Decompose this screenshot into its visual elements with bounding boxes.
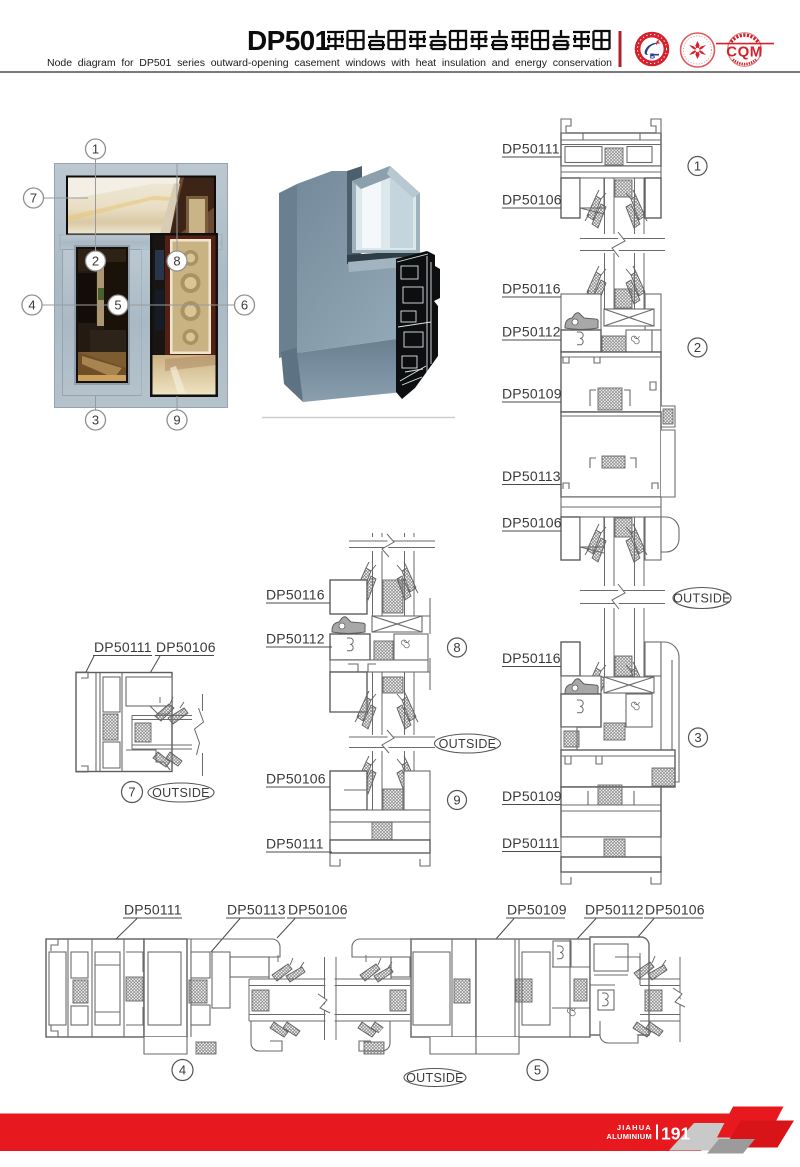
- svg-text:1: 1: [694, 159, 701, 174]
- svg-text:5: 5: [114, 298, 121, 313]
- svg-text:DP501: DP501: [247, 25, 330, 56]
- svg-text:8: 8: [173, 254, 180, 269]
- svg-text:DP50106: DP50106: [502, 515, 562, 531]
- svg-text:DP50116: DP50116: [502, 281, 561, 297]
- svg-text:DP50106: DP50106: [266, 771, 326, 787]
- svg-text:DP50112: DP50112: [585, 902, 644, 918]
- svg-text:DP50106: DP50106: [645, 902, 705, 918]
- svg-text:CQM: CQM: [726, 44, 763, 61]
- svg-text:1: 1: [92, 142, 99, 157]
- svg-text:DP50106: DP50106: [156, 639, 216, 655]
- svg-text:DP50109: DP50109: [507, 902, 567, 918]
- svg-text:DP50112: DP50112: [502, 324, 561, 340]
- svg-text:DP50111: DP50111: [266, 836, 324, 852]
- svg-text:6: 6: [241, 298, 248, 313]
- svg-text:OUTSIDE: OUTSIDE: [406, 1071, 464, 1085]
- svg-text:OUTSIDE: OUTSIDE: [673, 592, 731, 606]
- svg-text:7: 7: [128, 785, 135, 800]
- svg-text:DP50113: DP50113: [502, 468, 561, 484]
- svg-text:DP50109: DP50109: [502, 386, 562, 402]
- svg-text:5: 5: [534, 1063, 541, 1078]
- svg-text:DP50111: DP50111: [502, 835, 560, 851]
- svg-text:JIAHUA: JIAHUA: [617, 1123, 652, 1132]
- svg-text:DP50111: DP50111: [502, 141, 560, 157]
- svg-text:8: 8: [453, 640, 460, 655]
- svg-text:2: 2: [92, 254, 99, 269]
- svg-text:3: 3: [92, 413, 99, 428]
- svg-text:DP50112: DP50112: [266, 631, 325, 647]
- svg-text:DP50106: DP50106: [288, 902, 348, 918]
- svg-text:DP50116: DP50116: [266, 587, 325, 603]
- svg-text:DP50116: DP50116: [502, 650, 561, 666]
- svg-text:DP50113: DP50113: [227, 902, 286, 918]
- svg-text:DP50109: DP50109: [502, 788, 562, 804]
- svg-text:OUTSIDE: OUTSIDE: [439, 737, 497, 751]
- svg-text:2: 2: [694, 340, 701, 355]
- svg-text:4: 4: [179, 1063, 186, 1078]
- svg-text:9: 9: [453, 793, 460, 808]
- svg-text:4: 4: [28, 298, 35, 313]
- svg-text:7: 7: [30, 191, 37, 206]
- svg-text:191: 191: [661, 1124, 690, 1144]
- svg-text:DP50106: DP50106: [502, 192, 562, 208]
- svg-text:3: 3: [694, 730, 701, 745]
- svg-text:B: B: [650, 52, 656, 61]
- svg-text:OUTSIDE: OUTSIDE: [152, 786, 210, 800]
- svg-text:9: 9: [173, 413, 180, 428]
- svg-text:DP50111: DP50111: [94, 639, 152, 655]
- svg-text:DP50111: DP50111: [124, 902, 182, 918]
- svg-text:ALUMINIUM: ALUMINIUM: [606, 1132, 652, 1141]
- svg-text:Node diagram for DP501 ser: Node diagram for DP501 series outward-op…: [47, 57, 612, 69]
